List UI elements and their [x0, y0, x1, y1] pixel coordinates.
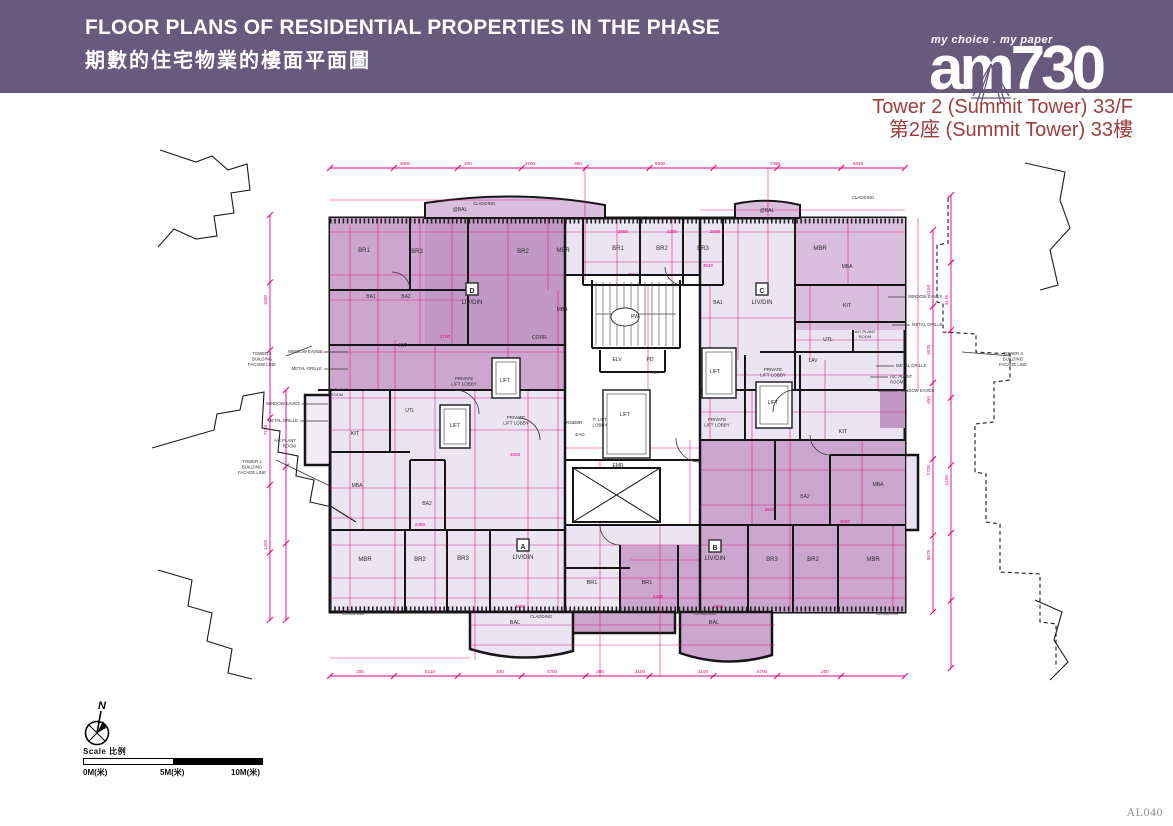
room-label: TOWER 1BUILDINGFACADE LINE — [238, 459, 266, 475]
svg-text:2200: 2200 — [667, 229, 678, 234]
room-label: METAL GRILLE — [896, 363, 926, 368]
svg-text:4800: 4800 — [400, 161, 411, 166]
svg-text:2625: 2625 — [765, 507, 776, 512]
room-label: BA1 — [366, 294, 376, 300]
svg-text:7350: 7350 — [770, 161, 781, 166]
scale-bar-0-5 — [84, 759, 173, 764]
room-label: LIV/DIN — [704, 556, 725, 562]
room-label: CLADDING — [852, 195, 875, 200]
svg-text:2150: 2150 — [944, 474, 949, 485]
svg-text:200: 200 — [496, 669, 504, 674]
room-label: B — [712, 545, 717, 552]
room-label: A — [520, 544, 525, 551]
room-label: TOWER 3BUILDINGFACADE LINE — [999, 351, 1027, 367]
room-label: BR2 — [807, 557, 819, 563]
svg-text:3100: 3100 — [635, 669, 646, 674]
room-label: KIT — [351, 431, 360, 437]
compass-n-label: N — [98, 700, 107, 712]
room-label: METAL GRILLE — [292, 366, 322, 371]
room-label: BR1 — [358, 248, 370, 254]
svg-text:4600: 4600 — [510, 452, 521, 457]
room-label: BAL — [510, 620, 520, 626]
room-label: BR1 — [612, 246, 624, 252]
room-label: BR3 — [697, 246, 709, 252]
svg-text:450: 450 — [926, 396, 931, 404]
scale-bar-5-10 — [173, 759, 262, 764]
room-label: BR3 — [457, 556, 469, 562]
room-label: PD — [647, 357, 654, 363]
scale-tick-10m: 10M(米) — [231, 767, 260, 778]
svg-text:5475: 5475 — [853, 161, 864, 166]
room-label: @BAL — [760, 208, 775, 214]
svg-text:3100: 3100 — [698, 669, 709, 674]
compass: N — [86, 700, 109, 745]
svg-text:7150: 7150 — [263, 424, 268, 435]
room-label: CLADDING — [694, 611, 717, 616]
room-label: BA1 — [713, 300, 723, 306]
room-label: WINDOW EAVES — [288, 349, 322, 354]
room-label: MBR — [813, 246, 827, 252]
svg-text:2400: 2400 — [653, 594, 664, 599]
room-label: MBR — [866, 557, 880, 563]
room-label: BR2 — [414, 557, 426, 563]
room-label: PRIVATELIFT LOBBY — [451, 376, 476, 387]
svg-text:2000: 2000 — [710, 229, 721, 234]
room-label: CLADDING — [876, 611, 899, 616]
scale-label: Scale 比例 — [83, 746, 265, 757]
room-label: METAL GRILLE — [912, 322, 942, 327]
room-label: KIT — [843, 303, 852, 309]
room-label: EMR — [612, 463, 624, 469]
svg-text:1500: 1500 — [263, 294, 268, 305]
room-label: @BAL — [453, 207, 468, 213]
room-label: BAL — [709, 620, 719, 626]
room-label: BR3 — [411, 249, 423, 255]
room-label: BR3 — [766, 557, 778, 563]
svg-text:1200: 1200 — [263, 539, 268, 550]
room-label: LIV/DIN — [461, 300, 482, 306]
scale-bar: Scale 比例 0M(米) 5M(米) 10M(米) — [83, 746, 265, 757]
room-label: LIFT — [620, 412, 630, 418]
room-label: BR1 — [587, 580, 598, 586]
svg-text:4700: 4700 — [757, 669, 768, 674]
room-label: CLADDING — [342, 611, 365, 616]
svg-text:200: 200 — [464, 161, 472, 166]
room-label: TOWER 1BUILDINGFACADE LINE — [248, 351, 276, 367]
page-number: AL040 — [1127, 805, 1164, 820]
room-label: CLADDING — [530, 614, 553, 619]
room-label: WINDOW EAVES — [266, 401, 300, 406]
room-label: LIFT — [768, 400, 778, 406]
svg-text:3650: 3650 — [840, 519, 851, 524]
svg-text:2705: 2705 — [926, 464, 931, 475]
room-label: MBA — [873, 482, 885, 488]
room-label: PRIVATELIFT LOBBY — [704, 417, 729, 428]
room-label: A/C PLANTROOM — [890, 374, 913, 384]
room-label: MBA — [842, 264, 854, 270]
room-label: CLADDING — [473, 201, 496, 206]
room-label: MBR — [556, 248, 570, 254]
svg-text:300: 300 — [574, 161, 582, 166]
room-label: PW — [631, 314, 639, 320]
svg-text:2450: 2450 — [415, 522, 426, 527]
room-label: RS&MR — [566, 420, 583, 425]
room-label: LIFT — [710, 369, 720, 375]
room-label: BR2 — [517, 249, 529, 255]
room-label: LIV/DIN — [512, 555, 533, 561]
room-label: F. LIFTLOBBY — [592, 417, 607, 428]
room-label: PRIVATELIFT LOBBY — [760, 367, 785, 378]
room-label: UTL — [405, 408, 415, 414]
room-label: LIFT — [500, 378, 510, 384]
room-label: UTL — [823, 337, 833, 343]
room-label: CORR. — [532, 335, 548, 341]
room-label: BR1 — [642, 580, 653, 586]
room-label: METAL GRILLE — [268, 418, 298, 423]
room-label: D — [469, 288, 474, 295]
scale-tick-5m: 5M(米) — [160, 767, 184, 778]
room-label: PRIVATELIFT LOBBY — [503, 415, 528, 426]
room-label: EAD — [575, 432, 585, 437]
scale-bar-graphic — [83, 758, 263, 765]
svg-text:3700: 3700 — [525, 161, 536, 166]
room-label: BA2 — [422, 501, 432, 507]
room-label: WINDOW EAVES — [908, 294, 942, 299]
room-label: LIFT — [450, 423, 460, 429]
room-label: A/C PLANTROOM — [274, 438, 297, 448]
page: FLOOR PLANS OF RESIDENTIAL PROPERTIES IN… — [0, 0, 1173, 826]
room-label: KIT — [839, 429, 848, 435]
room-label: HR — [652, 370, 659, 375]
svg-text:3640: 3640 — [703, 263, 714, 268]
svg-text:6300: 6300 — [655, 161, 666, 166]
svg-text:200: 200 — [596, 669, 604, 674]
room-label: KIT — [399, 343, 408, 349]
room-label: LAV — [808, 358, 818, 364]
room-label: BR2 — [656, 246, 668, 252]
svg-text:8110: 8110 — [425, 669, 435, 674]
svg-text:200: 200 — [821, 669, 829, 674]
svg-text:5675: 5675 — [926, 549, 931, 560]
scale-tick-0m: 0M(米) — [83, 767, 107, 778]
room-label: LIV/DIN — [751, 300, 772, 306]
room-label: BA2 — [401, 294, 411, 300]
svg-text:2700: 2700 — [440, 334, 451, 339]
room-label: C — [759, 288, 764, 295]
room-label: MBA — [352, 483, 364, 489]
svg-text:4700: 4700 — [547, 669, 558, 674]
svg-text:2650: 2650 — [618, 229, 629, 234]
room-label: MBA — [557, 307, 569, 313]
room-label: MBR — [358, 557, 372, 563]
floor-plan-drawing: 4800200370030063007350547520081102004700… — [0, 0, 1173, 826]
svg-text:200: 200 — [356, 669, 364, 674]
room-label: WINDOW EAVES — [900, 388, 934, 393]
room-label: ELV — [612, 357, 622, 363]
svg-text:1675: 1675 — [926, 344, 931, 355]
room-label: BA2 — [800, 494, 810, 500]
svg-text:3175: 3175 — [944, 294, 949, 305]
